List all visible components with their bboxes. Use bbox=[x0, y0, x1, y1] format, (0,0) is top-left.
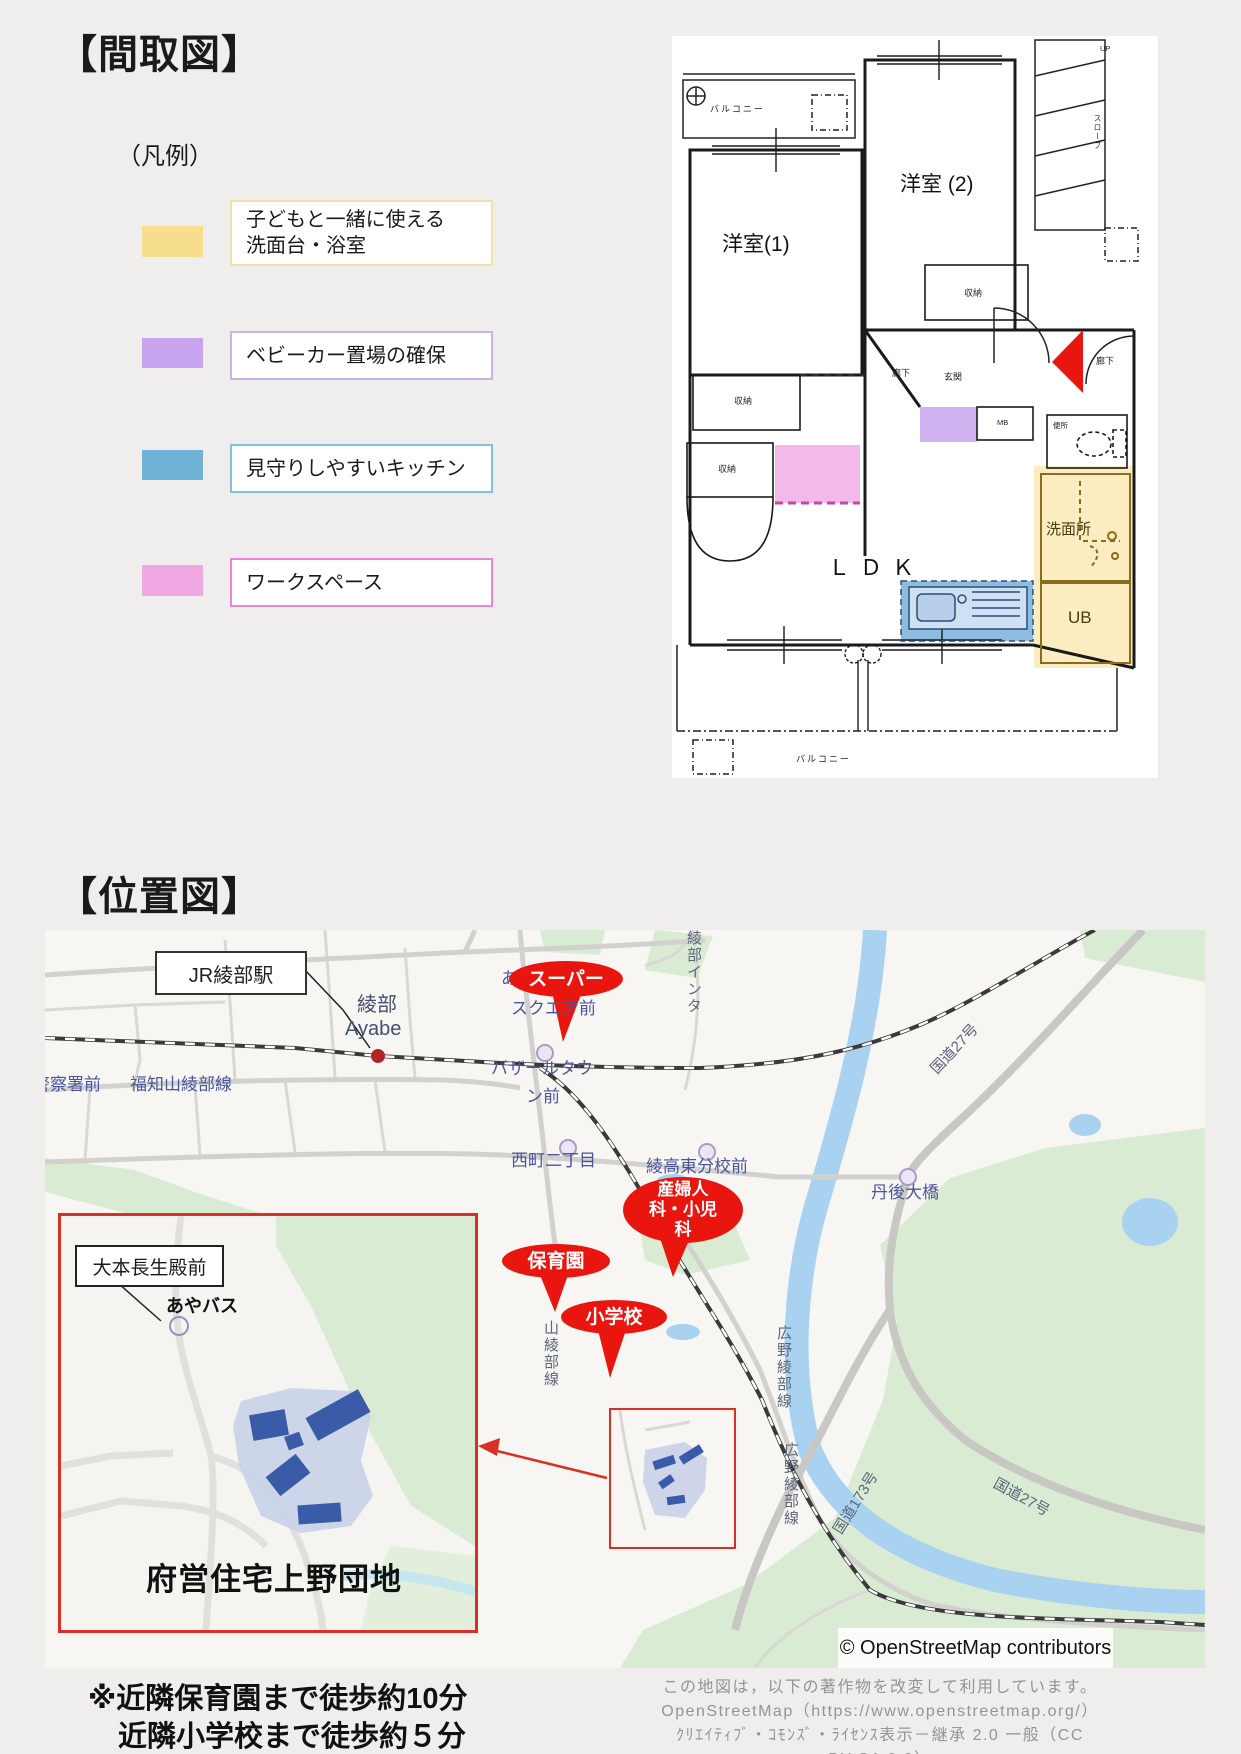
overlay-stroller-purple bbox=[920, 407, 977, 442]
estate-name-label: 府営住宅上野団地 bbox=[146, 1554, 402, 1599]
room-up: UP bbox=[1100, 44, 1110, 53]
license-line-1: この地図は，以下の著作物を改変して利用しています。 bbox=[660, 1676, 1100, 1700]
walk-note: ※近隣保育園まで徒歩約10分 近隣小学校まで徒歩約５分 bbox=[88, 1680, 467, 1754]
label-station-ja: 綾部 bbox=[357, 988, 397, 1017]
room-rouka: 廊下 bbox=[892, 366, 910, 379]
bus-stop-pointer bbox=[118, 1283, 161, 1321]
legend-label: （凡例） bbox=[117, 136, 213, 171]
walk-note-line1: ※近隣保育園まで徒歩約10分 bbox=[88, 1680, 467, 1718]
legend-swatch-bath bbox=[142, 226, 203, 257]
floorplan-svg bbox=[672, 36, 1158, 778]
station-callout: JR綾部駅 bbox=[155, 951, 307, 995]
floorplan-title: 【間取図】 bbox=[57, 22, 262, 80]
room-genkan: 玄関 bbox=[944, 370, 962, 383]
legend-item-bath-label: 子どもと一緒に使える洗面台・浴室 bbox=[246, 207, 445, 259]
label-tango: 丹後大橋 bbox=[871, 1178, 939, 1203]
room-yoshitsu1: 洋室(1) bbox=[722, 228, 790, 258]
label-nishimachi: 西町二丁目 bbox=[511, 1146, 596, 1171]
label-hirono-1: 広野綾部線 bbox=[773, 1325, 794, 1410]
label-keisatsu: 警察署前 bbox=[45, 1070, 101, 1095]
legend-item-workspace-label: ワークスペース bbox=[246, 570, 383, 596]
legend-swatch-stroller bbox=[142, 338, 203, 368]
room-yoshitsu2: 洋室 (2) bbox=[900, 168, 974, 198]
inset-arrow-line bbox=[485, 1448, 607, 1478]
room-mb: MB bbox=[997, 418, 1008, 427]
legend-item-kitchen: 見守りしやすいキッチン bbox=[230, 444, 493, 493]
room-shuno-b: 収納 bbox=[718, 462, 736, 475]
label-hirono-2: 広野綾部線 bbox=[780, 1442, 801, 1527]
room-balcony-bottom: バルコニー bbox=[796, 752, 851, 765]
overlay-workspace-pink bbox=[775, 445, 860, 503]
balloon-super: スーパー bbox=[509, 961, 623, 997]
entrance-arrow bbox=[1052, 330, 1083, 393]
bus-stop-callout: 大本長生殿前 bbox=[75, 1245, 224, 1287]
legend-swatch-kitchen bbox=[142, 450, 203, 480]
legend-item-stroller: ベビーカー置場の確保 bbox=[230, 331, 493, 380]
legend-item-bath: 子どもと一緒に使える洗面台・浴室 bbox=[230, 200, 493, 266]
license-line-2: OpenStreetMap（https://www.openstreetmap.… bbox=[660, 1700, 1100, 1724]
ayabus-label: あやバス bbox=[166, 1292, 238, 1318]
room-rouka-2: 廊下 bbox=[1096, 354, 1114, 367]
room-shuno-a: 収納 bbox=[734, 394, 752, 407]
legend-swatch-workspace bbox=[142, 565, 203, 596]
balloon-shogakko: 小学校 bbox=[561, 1300, 667, 1334]
bus-stop-callout-label: 大本長生殿前 bbox=[92, 1253, 206, 1280]
flyer-page: 【間取図】 （凡例） 子どもと一緒に使える洗面台・浴室 ベビーカー置場の確保 見… bbox=[0, 0, 1241, 1754]
label-square-mae: スクエア前 bbox=[511, 994, 596, 1019]
room-ldk: ＬＤＫ bbox=[828, 550, 924, 582]
overlay-bath-yellow bbox=[1034, 466, 1135, 668]
label-station-en: Ayabe bbox=[345, 1018, 401, 1041]
room-shuno-c: 収納 bbox=[964, 286, 982, 299]
legend-item-kitchen-label: 見守りしやすいキッチン bbox=[246, 456, 466, 482]
label-yamaayabe: 山綾部線 bbox=[540, 1320, 561, 1388]
floorplan-drawing: バルコニー 洋室(1) 洋室 (2) 収納 収納 収納 廊下 玄関 廊下 MB … bbox=[672, 36, 1158, 778]
osm-attribution-text: © OpenStreetMap contributors bbox=[840, 1637, 1112, 1660]
license-line-3: ｸﾘｴｲﾃｨﾌﾞ・ｺﾓﾝｽﾞ・ﾗｲｾﾝｽ表示－継承 2.0 一般（CC BY-S… bbox=[660, 1724, 1100, 1754]
room-balcony-top: バルコニー bbox=[710, 102, 765, 115]
location-map: 警察署前 福知山綾部線 綾部 Ayabe あ スクエア前 バザールタウ ン前 西… bbox=[45, 930, 1205, 1668]
label-bazaar-1: バザールタウ bbox=[491, 1054, 593, 1079]
station-callout-label: JR綾部駅 bbox=[189, 959, 273, 988]
label-fukuchiyama: 福知山綾部線 bbox=[130, 1070, 232, 1095]
walk-note-line2: 近隣小学校まで徒歩約５分 bbox=[88, 1718, 467, 1754]
balloon-hoikuen: 保育園 bbox=[502, 1244, 610, 1278]
legend-item-stroller-label: ベビーカー置場の確保 bbox=[246, 343, 446, 369]
license-block: この地図は，以下の著作物を改変して利用しています。 OpenStreetMap（… bbox=[660, 1676, 1100, 1754]
balloon-sanfujinka: 産婦人 科・小児 科 bbox=[623, 1177, 743, 1243]
label-ayabe-inter: 綾部インタ bbox=[683, 930, 704, 1015]
inset-arrow-head bbox=[478, 1438, 500, 1456]
room-ub: UB bbox=[1068, 608, 1092, 628]
room-benjo: 便所 bbox=[1053, 420, 1068, 431]
label-bunko: 綾高東分校前 bbox=[646, 1152, 748, 1177]
label-bazaar-2: ン前 bbox=[526, 1082, 560, 1107]
location-title: 【位置図】 bbox=[57, 864, 262, 922]
station-dot bbox=[371, 1049, 385, 1063]
room-slope: スロープ bbox=[1092, 114, 1103, 150]
osm-attribution: © OpenStreetMap contributors bbox=[838, 1628, 1113, 1668]
inset-map: 大本長生殿前 あやバス 府営住宅上野団地 bbox=[58, 1213, 478, 1633]
room-senmenjo: 洗面所 bbox=[1046, 518, 1091, 539]
legend-item-workspace: ワークスペース bbox=[230, 558, 493, 607]
estate-target-box bbox=[609, 1408, 736, 1549]
